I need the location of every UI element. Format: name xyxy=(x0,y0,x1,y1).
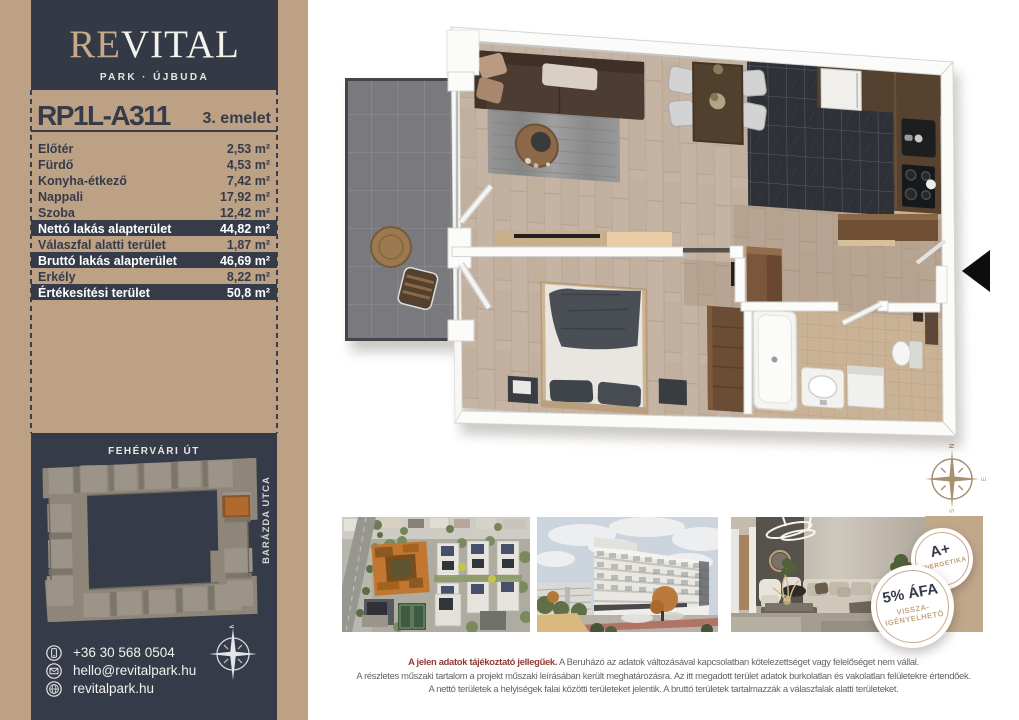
svg-text:N: N xyxy=(949,444,956,449)
svg-text:N: N xyxy=(230,625,236,628)
svg-text:S: S xyxy=(950,509,956,513)
svg-text:E: E xyxy=(982,477,987,481)
